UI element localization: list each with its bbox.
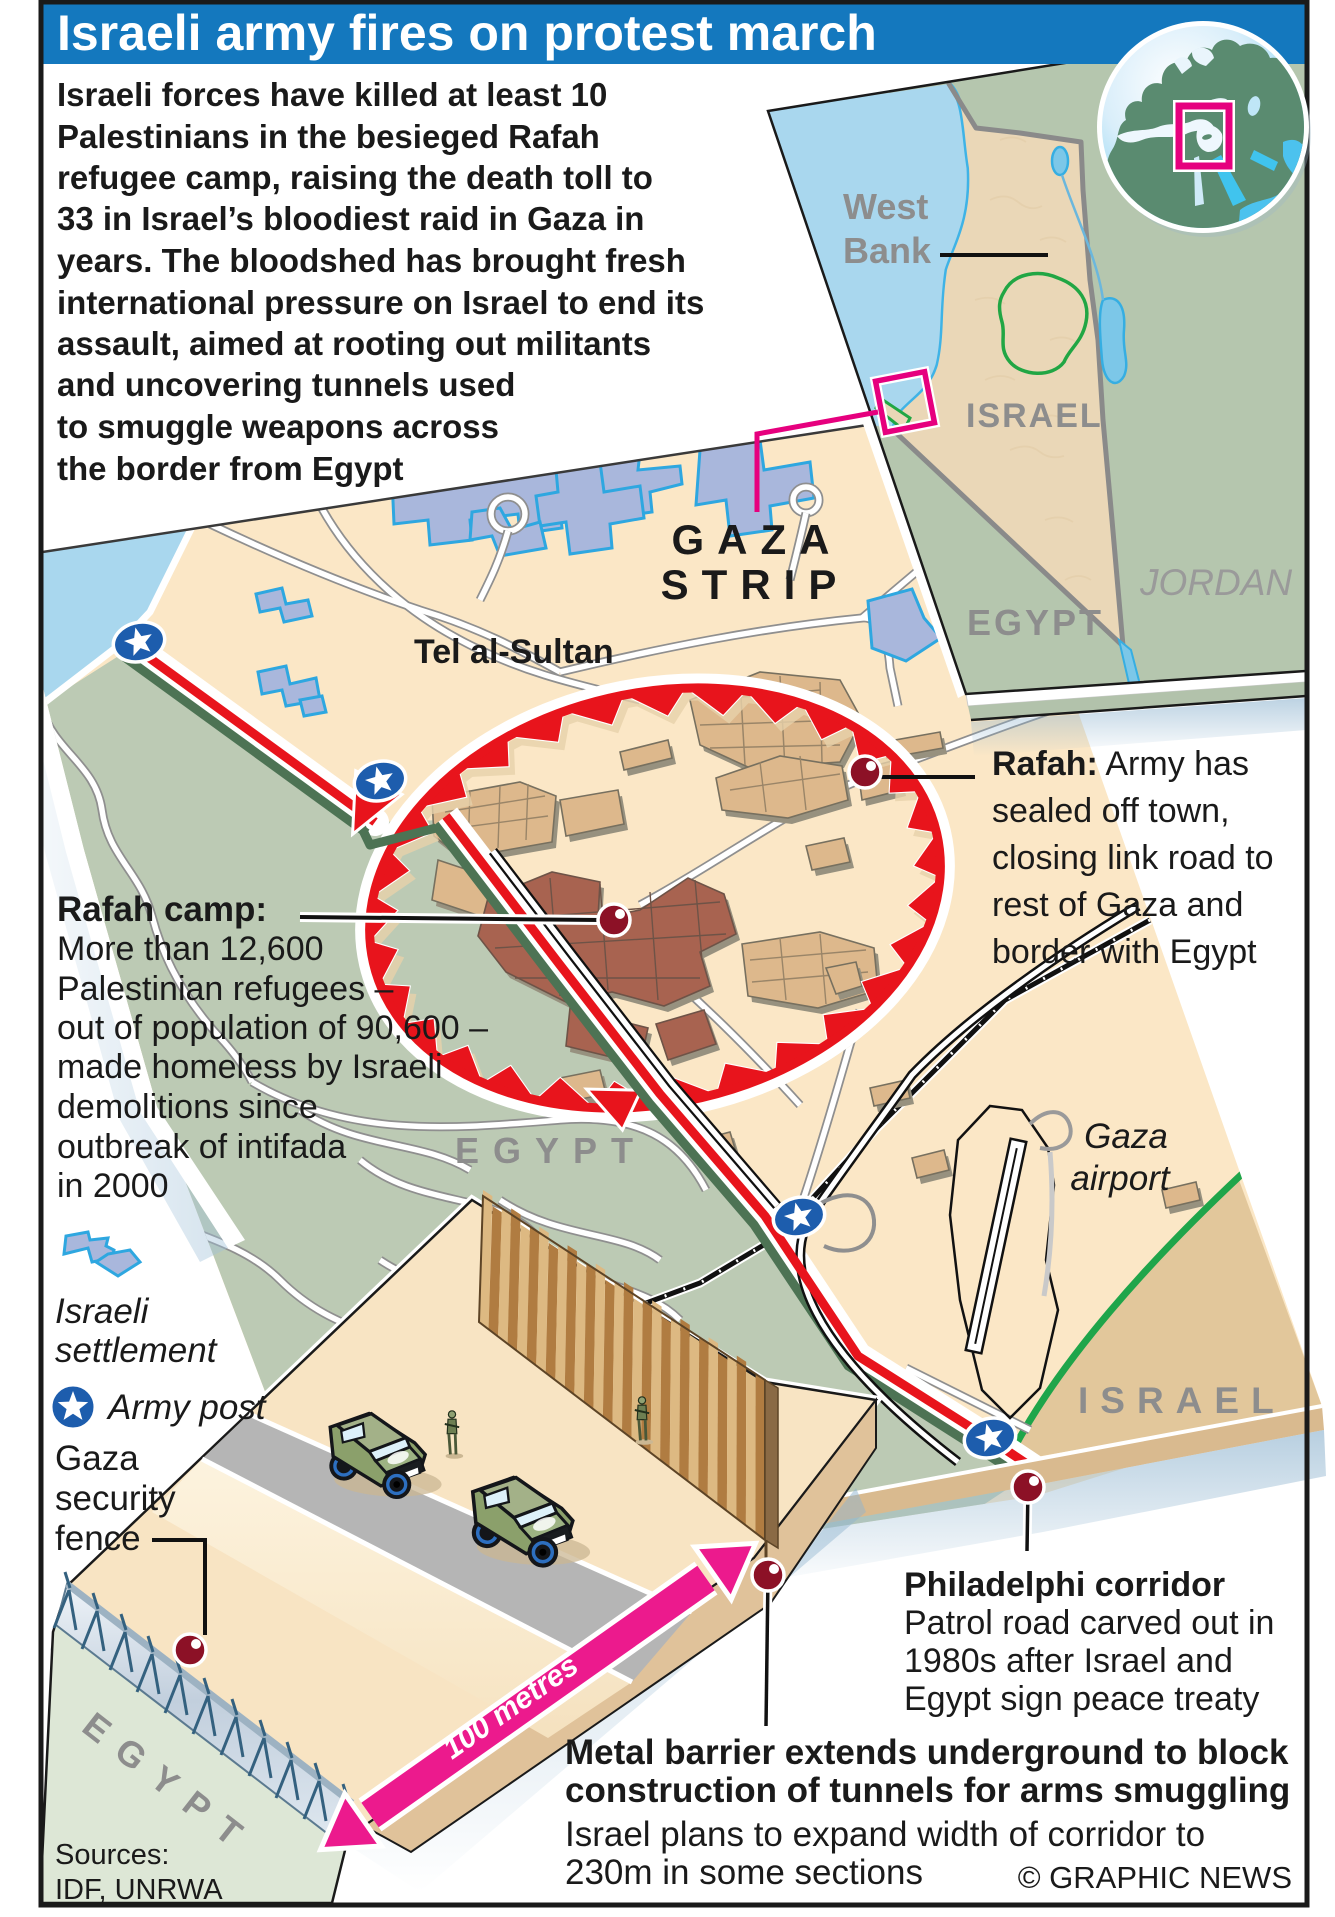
svg-text:© GRAPHIC NEWS: © GRAPHIC NEWS	[1018, 1860, 1292, 1895]
svg-text:sealed off town,: sealed off town,	[992, 792, 1230, 830]
svg-text:Rafah camp:: Rafah camp:	[57, 890, 267, 929]
svg-text:construction of tunnels for ar: construction of tunnels for arms smuggli…	[565, 1771, 1290, 1810]
svg-text:made homeless by Israeli: made homeless by Israeli	[57, 1048, 443, 1086]
svg-text:IDF, UNRWA: IDF, UNRWA	[55, 1874, 223, 1906]
svg-text:settlement: settlement	[55, 1331, 218, 1370]
svg-text:border with Egypt: border with Egypt	[992, 933, 1257, 971]
svg-text:GAZA: GAZA	[672, 516, 843, 563]
svg-text:closing link road to: closing link road to	[992, 839, 1274, 877]
svg-text:33 in Israel’s bloodiest raid: 33 in Israel’s bloodiest raid in Gaza in	[57, 200, 644, 237]
svg-text:Israeli: Israeli	[55, 1292, 150, 1331]
svg-text:STRIP: STRIP	[661, 561, 850, 608]
svg-text:Army post: Army post	[106, 1388, 267, 1427]
svg-text:Gaza: Gaza	[1084, 1117, 1168, 1156]
svg-text:More than 12,600: More than 12,600	[57, 930, 324, 968]
svg-text:EGYPT: EGYPT	[967, 602, 1104, 643]
svg-text:Philadelphi corridor: Philadelphi corridor	[904, 1566, 1225, 1604]
svg-text:230m in some sections: 230m in some sections	[565, 1853, 923, 1892]
svg-text:fence: fence	[55, 1519, 141, 1558]
svg-text:Metal barrier extends undergro: Metal barrier extends underground to blo…	[565, 1733, 1289, 1772]
svg-text:airport: airport	[1070, 1159, 1170, 1198]
svg-text:Israeli army fires on protest: Israeli army fires on protest march	[57, 5, 877, 61]
svg-text:international pressure on Isra: international pressure on Israel to end …	[57, 284, 704, 321]
svg-text:Gaza: Gaza	[55, 1439, 139, 1478]
svg-text:Israel plans to expand width o: Israel plans to expand width of corridor…	[565, 1815, 1205, 1854]
svg-text:outbreak of intifada: outbreak of intifada	[57, 1128, 346, 1166]
svg-text:Sources:: Sources:	[55, 1839, 169, 1871]
svg-text:JORDAN: JORDAN	[1139, 562, 1292, 603]
svg-text:demolitions since: demolitions since	[57, 1088, 318, 1126]
svg-text:in 2000: in 2000	[57, 1167, 169, 1205]
svg-text:Rafah: Army has: Rafah: Army has	[992, 745, 1249, 783]
svg-text:to smuggle weapons across: to smuggle weapons across	[57, 408, 499, 445]
svg-text:years. The bloodshed has broug: years. The bloodshed has brought fresh	[57, 242, 686, 279]
svg-text:Bank: Bank	[843, 230, 932, 271]
svg-text:ISRAEL: ISRAEL	[966, 397, 1103, 435]
svg-text:and uncovering tunnels used: and uncovering tunnels used	[57, 366, 515, 403]
svg-text:Israeli forces have killed at: Israeli forces have killed at least 10	[57, 76, 607, 113]
svg-text:1980s after Israel and: 1980s after Israel and	[904, 1642, 1233, 1680]
svg-text:rest of Gaza and: rest of Gaza and	[992, 886, 1243, 924]
svg-text:assault, aimed at rooting out: assault, aimed at rooting out militants	[57, 325, 651, 362]
svg-text:security: security	[55, 1479, 176, 1518]
svg-text:EGYPT: EGYPT	[455, 1130, 647, 1171]
svg-text:Patrol road carved out in: Patrol road carved out in	[904, 1604, 1274, 1642]
svg-text:West: West	[843, 186, 928, 227]
svg-text:Egypt sign peace treaty: Egypt sign peace treaty	[904, 1680, 1259, 1718]
svg-text:Tel al-Sultan: Tel al-Sultan	[414, 633, 614, 671]
svg-text:ISRAEL: ISRAEL	[1078, 1380, 1286, 1421]
svg-text:refugee camp, raising the deat: refugee camp, raising the death toll to	[57, 159, 653, 196]
svg-text:the border from Egypt: the border from Egypt	[57, 450, 404, 487]
svg-text:Palestinian refugees –: Palestinian refugees –	[57, 970, 394, 1008]
svg-text:out of population of 90,600 –: out of population of 90,600 –	[57, 1009, 488, 1047]
svg-text:Palestinians in the besieged R: Palestinians in the besieged Rafah	[57, 118, 600, 155]
